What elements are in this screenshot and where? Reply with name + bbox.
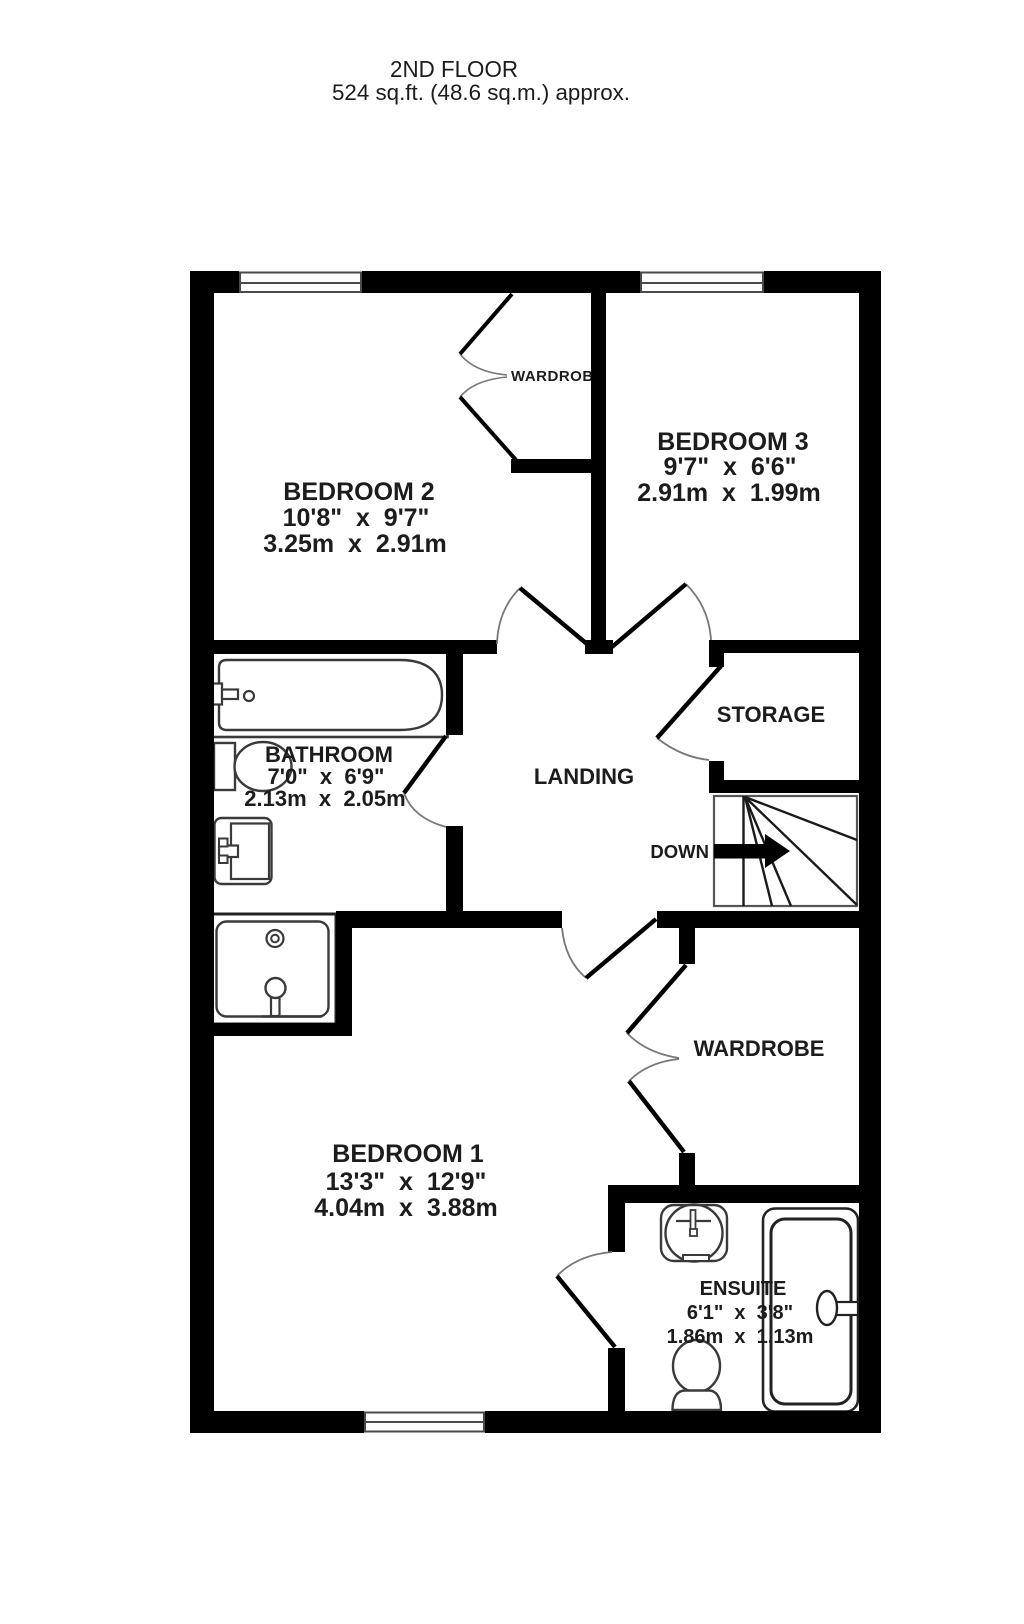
svg-text:1.86m x 1.13m: 1.86m x 1.13m (667, 1326, 814, 1348)
svg-text:WARDROBE: WARDROBE (511, 368, 604, 385)
svg-text:524 sq.ft. (48.6 sq.m.) approx: 524 sq.ft. (48.6 sq.m.) approx. (332, 80, 630, 105)
svg-text:BEDROOM 1: BEDROOM 1 (332, 1140, 484, 1168)
svg-text:ENSUITE: ENSUITE (700, 1278, 787, 1300)
svg-text:WARDROBE: WARDROBE (694, 1036, 825, 1061)
svg-text:BEDROOM 3: BEDROOM 3 (657, 428, 808, 456)
svg-text:DOWN: DOWN (650, 841, 709, 862)
svg-text:9'7" x 6'6": 9'7" x 6'6" (664, 453, 797, 481)
svg-text:10'8" x 9'7": 10'8" x 9'7" (283, 504, 430, 532)
svg-text:13'3" x 12'9": 13'3" x 12'9" (326, 1168, 487, 1196)
svg-text:4.04m x 3.88m: 4.04m x 3.88m (314, 1194, 497, 1222)
svg-text:LANDING: LANDING (534, 764, 634, 789)
svg-text:STORAGE: STORAGE (717, 702, 825, 727)
svg-text:6'1" x 3'8": 6'1" x 3'8" (687, 1302, 793, 1324)
svg-text:2.91m x 1.99m: 2.91m x 1.99m (637, 479, 820, 507)
svg-text:2.13m x 2.05m: 2.13m x 2.05m (244, 786, 405, 811)
svg-text:BEDROOM 2: BEDROOM 2 (283, 478, 434, 506)
svg-text:3.25m x 2.91m: 3.25m x 2.91m (263, 530, 446, 558)
svg-text:2ND FLOOR: 2ND FLOOR (390, 56, 518, 82)
